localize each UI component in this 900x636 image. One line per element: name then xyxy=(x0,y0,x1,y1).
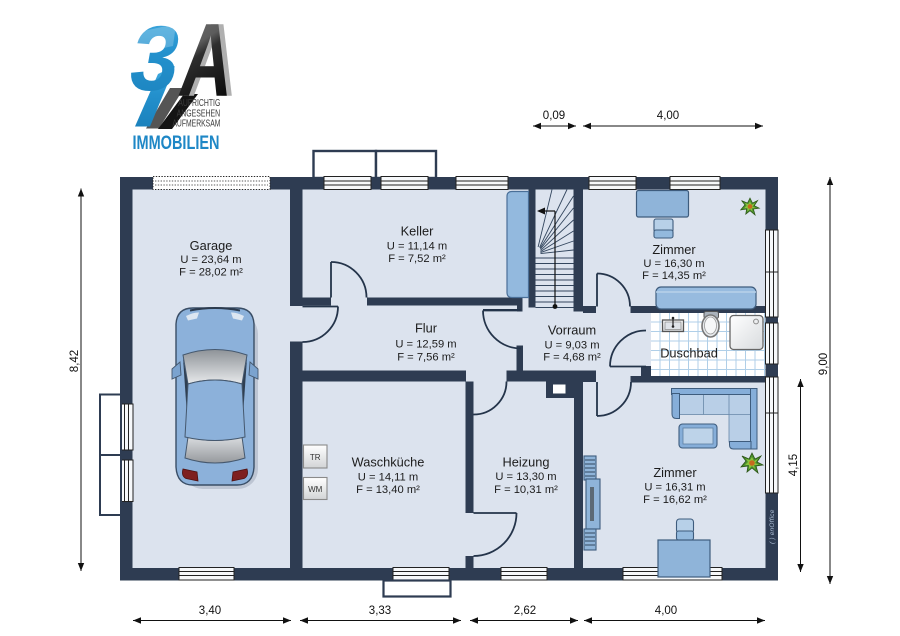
svg-text:IMMOBILIEN: IMMOBILIEN xyxy=(133,133,220,154)
svg-text:( ) enOffice: ( ) enOffice xyxy=(769,509,776,544)
svg-text:Vorraum: Vorraum xyxy=(548,323,596,338)
svg-text:U = 13,30 m: U = 13,30 m xyxy=(495,471,556,483)
svg-text:3,33: 3,33 xyxy=(369,605,391,617)
svg-text:3,40: 3,40 xyxy=(199,605,221,617)
svg-text:U = 14,11 m: U = 14,11 m xyxy=(358,472,418,484)
svg-text:TR: TR xyxy=(310,453,321,462)
svg-text:U = 23,64 m: U = 23,64 m xyxy=(180,254,241,266)
svg-text:Duschbad: Duschbad xyxy=(660,346,718,361)
svg-text:8,42: 8,42 xyxy=(69,350,81,372)
svg-text:Keller: Keller xyxy=(401,224,434,239)
svg-text:Zimmer: Zimmer xyxy=(653,465,697,480)
svg-text:F = 28,02 m²: F = 28,02 m² xyxy=(179,267,243,279)
svg-text:F = 4,68 m²: F = 4,68 m² xyxy=(543,352,601,364)
svg-text:4,00: 4,00 xyxy=(655,605,677,617)
svg-text:0,09: 0,09 xyxy=(543,110,565,122)
svg-text:4,00: 4,00 xyxy=(657,110,679,122)
svg-text:U = 16,30 m: U = 16,30 m xyxy=(643,258,704,270)
svg-text:Heizung: Heizung xyxy=(503,455,550,470)
svg-text:U = 12,59 m: U = 12,59 m xyxy=(395,339,456,351)
svg-text:WM: WM xyxy=(308,485,323,494)
svg-text:Waschküche: Waschküche xyxy=(352,455,425,470)
svg-text:F = 13,40 m²: F = 13,40 m² xyxy=(356,484,420,496)
svg-text:Flur: Flur xyxy=(415,321,438,336)
svg-text:9,00: 9,00 xyxy=(818,353,830,375)
svg-text:Zimmer: Zimmer xyxy=(652,242,696,257)
svg-text:F = 7,56 m²: F = 7,56 m² xyxy=(397,352,455,364)
svg-text:F = 14,35 m²: F = 14,35 m² xyxy=(642,270,706,282)
svg-text:F = 7,52 m²: F = 7,52 m² xyxy=(388,253,446,265)
svg-text:2,62: 2,62 xyxy=(514,605,536,617)
svg-text:4,15: 4,15 xyxy=(788,454,800,476)
svg-text:F = 10,31 m²: F = 10,31 m² xyxy=(494,484,558,496)
svg-text:U = 11,14 m: U = 11,14 m xyxy=(387,241,447,253)
svg-text:AUFMERKSAM: AUFMERKSAM xyxy=(172,118,220,129)
svg-text:Garage: Garage xyxy=(190,238,233,253)
svg-text:F = 16,62 m²: F = 16,62 m² xyxy=(643,494,707,506)
svg-text:U = 9,03 m: U = 9,03 m xyxy=(544,340,599,352)
svg-text:U = 16,31 m: U = 16,31 m xyxy=(644,482,705,494)
